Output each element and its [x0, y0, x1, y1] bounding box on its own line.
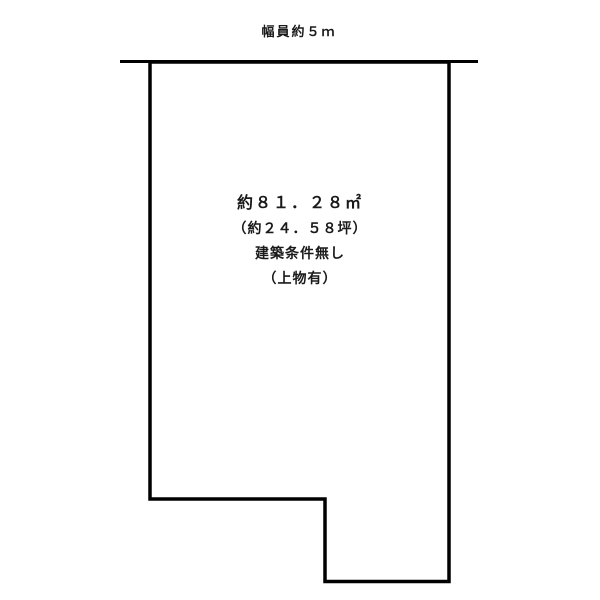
structure-note-label: （上物有）: [150, 266, 450, 291]
land-plot-diagram: 幅員約５ｍ 約８１．２８㎡ （約２４．５８坪） 建築条件無し （上物有）: [0, 0, 600, 600]
area-square-meters-label: 約８１．２８㎡: [150, 191, 450, 216]
plot-info-block: 約８１．２８㎡ （約２４．５８坪） 建築条件無し （上物有）: [150, 191, 450, 291]
area-tsubo-label: （約２４．５８坪）: [150, 216, 450, 241]
building-condition-label: 建築条件無し: [150, 241, 450, 266]
plot-outline: [150, 62, 449, 582]
plot-outline-drawing: [0, 0, 600, 600]
